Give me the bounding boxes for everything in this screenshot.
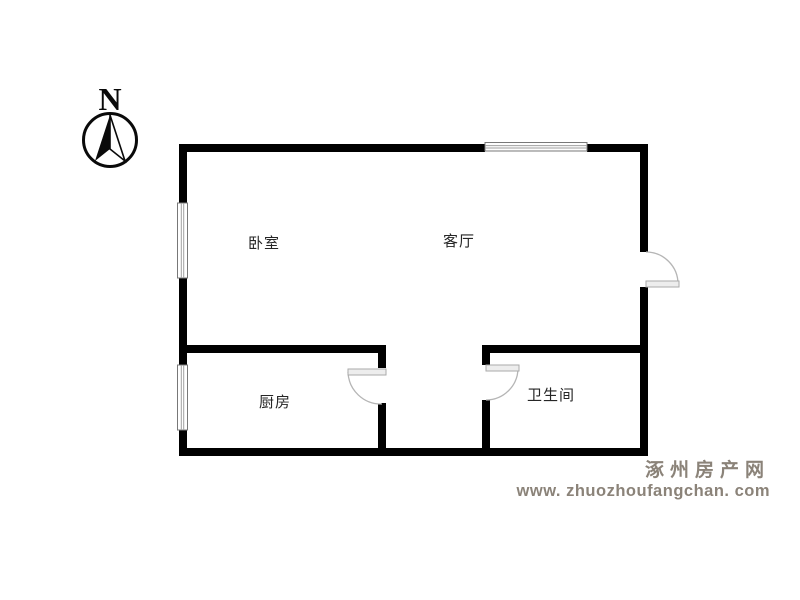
entry-door-panel <box>646 281 679 287</box>
wall-bathroom-west-upper <box>482 345 490 365</box>
bathroom-door <box>486 365 519 400</box>
windows <box>178 143 588 431</box>
room-label-bedroom: 卧室 <box>248 232 280 253</box>
north-indicator: N <box>75 72 145 172</box>
room-label-bathroom: 卫生间 <box>527 384 575 405</box>
watermark: 涿州房产网 www. zhuozhoufangchan. com <box>517 461 770 500</box>
wall-kitchen-north <box>179 345 386 353</box>
wall-bathroom-north <box>482 345 648 353</box>
wall-top-right-segment <box>587 144 648 152</box>
watermark-site-name: 涿州房产网 <box>517 461 770 480</box>
window-kitchen <box>178 365 188 430</box>
watermark-site-url: www. zhuozhoufangchan. com <box>517 483 770 500</box>
wall-right-upper-segment <box>640 144 648 252</box>
wall-kitchen-east-lower <box>378 403 386 456</box>
wall-bathroom-west-lower <box>482 400 490 456</box>
compass-needle-left <box>95 115 110 161</box>
kitchen-door-panel <box>348 369 386 375</box>
wall-kitchen-east-upper <box>378 345 386 368</box>
kitchen-door <box>348 369 386 404</box>
entry-door <box>646 252 679 287</box>
doors <box>348 252 679 404</box>
wall-left-upper-segment <box>179 144 187 203</box>
wall-top-left-segment <box>179 144 485 152</box>
bathroom-door-panel <box>486 365 519 371</box>
compass-needle-right <box>110 115 125 161</box>
outer-walls <box>179 144 648 456</box>
room-label-kitchen: 厨房 <box>259 391 291 412</box>
room-label-living-room: 客厅 <box>443 230 475 251</box>
window-bedroom <box>178 203 188 278</box>
interior-walls <box>179 345 648 456</box>
floorplan-canvas: N 卧室 客厅 厨房 卫生间 涿州房产网 www. zhuozhoufangch… <box>0 0 800 600</box>
north-label: N <box>98 81 121 117</box>
wall-right-lower-segment <box>640 287 648 456</box>
window-living-room <box>485 143 587 152</box>
wall-bottom <box>179 448 648 456</box>
